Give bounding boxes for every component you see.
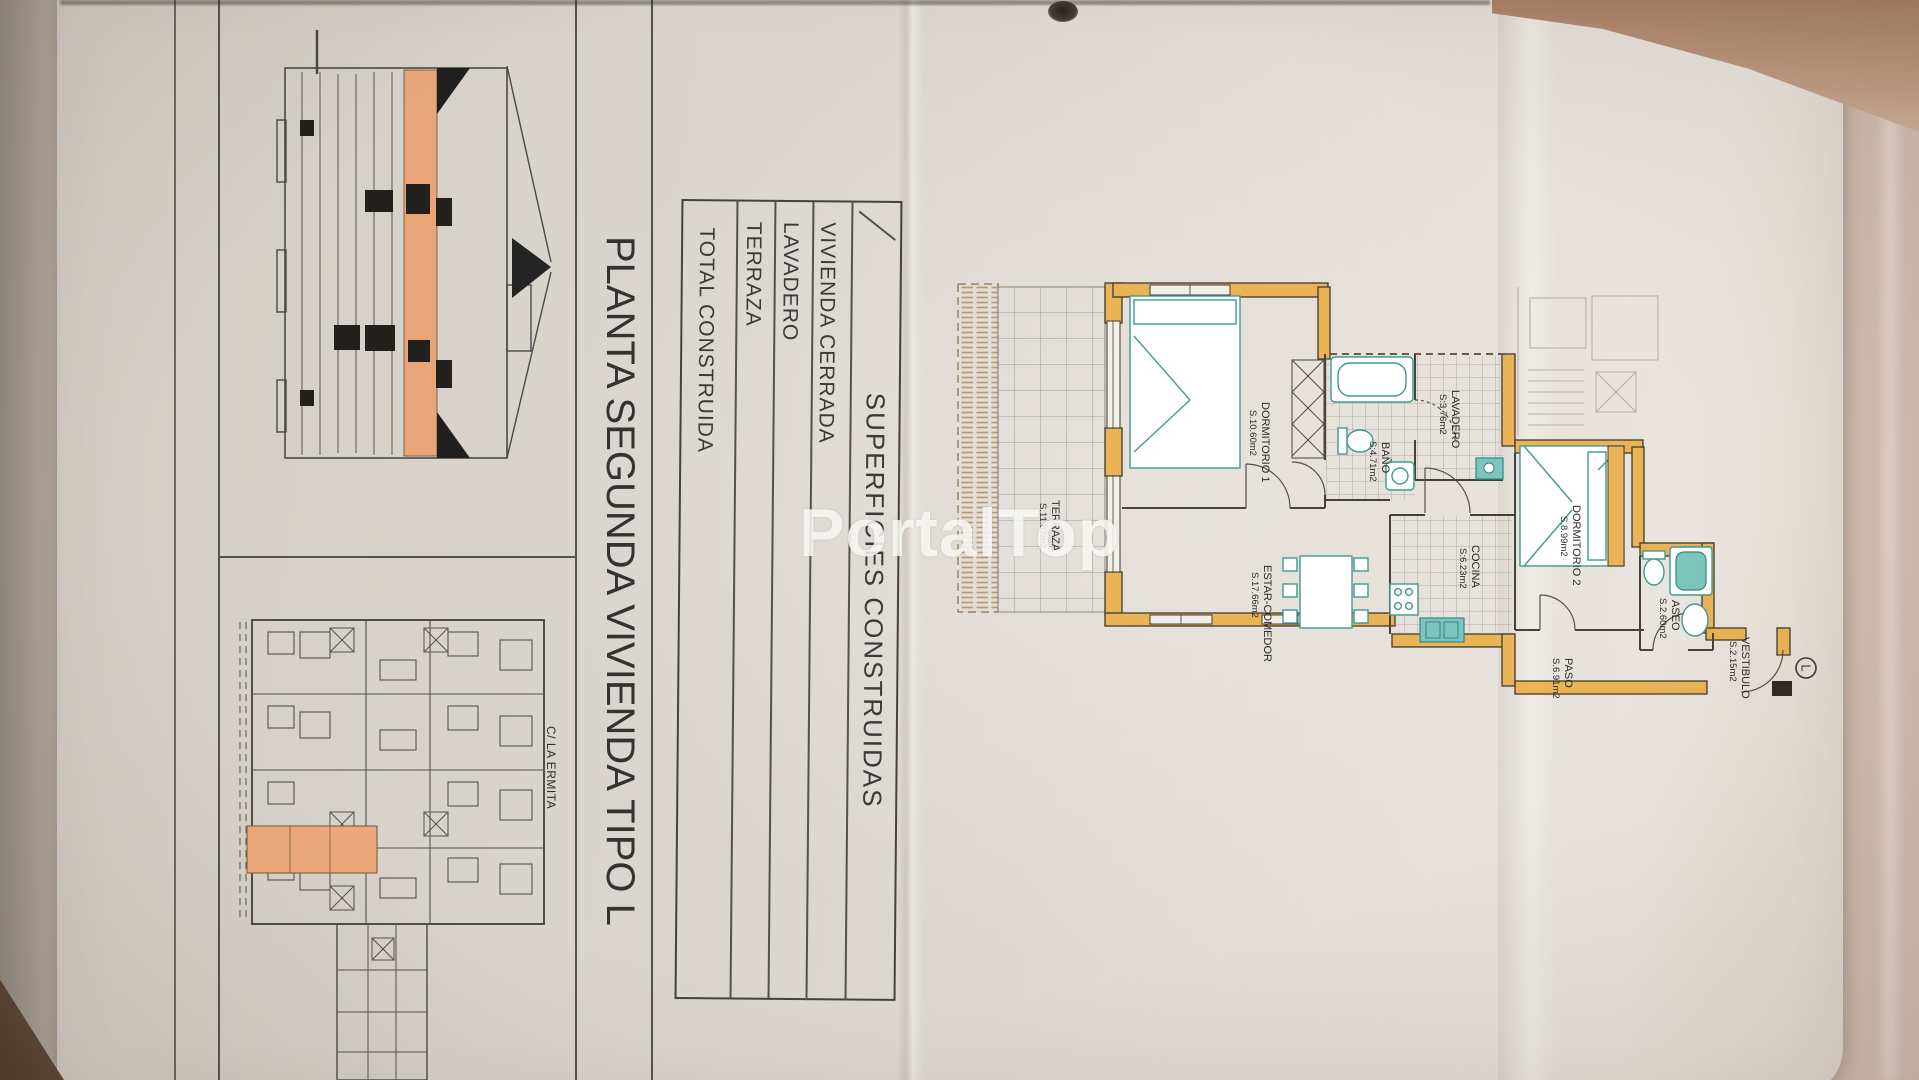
row-label-terraza: TERRAZA — [740, 222, 765, 327]
washbasin-aseo — [1682, 604, 1708, 636]
row-label-lavadero: LAVADERO — [777, 222, 802, 341]
room-area-vestibulo: S.2.15m2 — [1727, 641, 1738, 682]
row-label-vivienda-cerrada: VIVIENDA CERRADA — [813, 222, 839, 444]
room-label-aseo: ASEO — [1669, 600, 1681, 631]
entry-wall-endcap — [1772, 681, 1792, 696]
photo-of-floorplan-sheet: PLANTA SEGUNDA VIVIENDA TIPO L SUPERFICI… — [0, 0, 1919, 1080]
room-area-dormitorio-1: S.10.60m2 — [1247, 410, 1258, 456]
room-label-dormitorio-1: DORMITORIO 1 — [1259, 402, 1271, 482]
table-header-label: SUPERFICIES CONSTRUIDAS — [856, 393, 891, 809]
room-label-vestibulo: VESTIBULO — [1739, 637, 1751, 699]
table-header-cell: SUPERFICIES CONSTRUIDAS — [845, 203, 903, 999]
room-area-paso: S.6.91m2 — [1550, 658, 1561, 699]
portal-watermark: PortalTop — [799, 494, 1120, 572]
room-label-lavadero: LAVADERO — [1449, 390, 1461, 449]
room-area-lavadero: S:3.76m2 — [1437, 394, 1448, 435]
room-area-dormitorio-2: S.8.99m2 — [1558, 516, 1569, 557]
dining-table — [1300, 556, 1352, 628]
room-label-paso: PASO — [1562, 658, 1574, 688]
frame-line-boxes-left — [218, 0, 220, 1080]
frame-line-outer — [174, 0, 176, 1080]
frame-line-title-right — [651, 0, 653, 1080]
punch-hole — [1048, 1, 1078, 22]
site-plan-drawing — [225, 600, 575, 1080]
room-area-cocina: S:6.23m2 — [1457, 548, 1468, 589]
room-label-cocina: COCINA — [1469, 545, 1481, 588]
stove — [1390, 584, 1418, 615]
unit-type-badge-letter: L — [1799, 664, 1814, 671]
box-divider-line — [218, 556, 577, 558]
room-area-estar-comedor: S.17.66m2 — [1249, 572, 1260, 618]
paper-top-edge-shadow — [60, 0, 1490, 5]
site-plan-highlighted-unit — [247, 826, 377, 873]
room-label-dormitorio-2: DORMITORIO 2 — [1570, 505, 1582, 585]
elevation-drawing — [240, 15, 570, 495]
kitchen-tiles — [1392, 516, 1512, 634]
toilet-aseo — [1644, 559, 1664, 585]
row-label-total: TOTAL CONSTRUIDA — [692, 227, 718, 453]
unit-type-badge: L — [1796, 658, 1816, 678]
room-area-aseo: S.2.60m2 — [1657, 598, 1668, 639]
background-light-streak — [1882, 0, 1898, 1080]
bathtub — [1331, 357, 1413, 402]
room-label-bano: BAÑO — [1379, 442, 1392, 474]
page-title: PLANTA SEGUNDA VIVIENDA TIPO L — [597, 236, 642, 926]
bed2-headboard — [1608, 446, 1624, 566]
room-label-estar-comedor: ESTAR-COMEDOR — [1261, 565, 1273, 662]
room-area-bano: S:4.71m2 — [1367, 441, 1378, 482]
frame-line-title-left — [575, 0, 577, 1080]
street-label: C/ LA ERMITA — [544, 726, 558, 809]
